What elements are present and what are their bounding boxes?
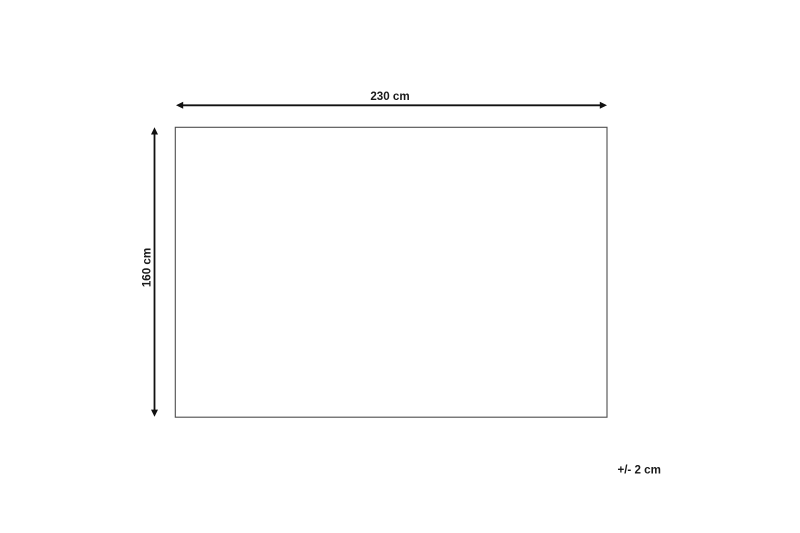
svg-text:+/- 2 cm: +/- 2 cm — [617, 464, 661, 477]
svg-text:160 cm: 160 cm — [141, 248, 154, 287]
svg-text:230 cm: 230 cm — [370, 90, 409, 103]
